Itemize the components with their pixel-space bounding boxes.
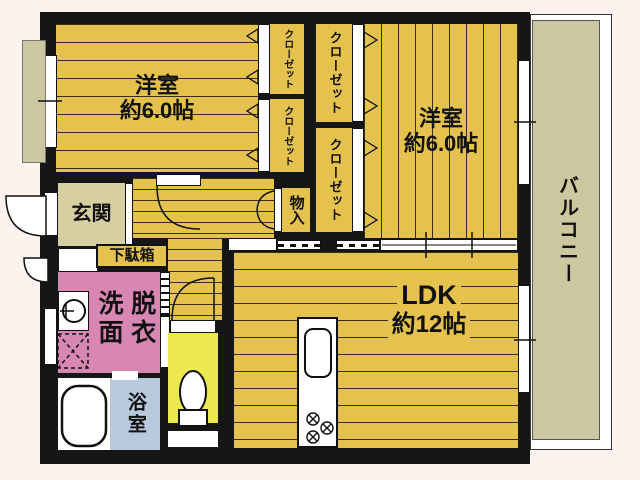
bathtub-icon xyxy=(62,386,106,446)
toilet-icon xyxy=(179,371,207,426)
plan-symbols-layer xyxy=(0,0,640,480)
washbasin-icon xyxy=(60,300,85,322)
floor-plan-canvas: バルコニー 洋室 約6.0帖 クローゼット クローゼット クローゼット クローゼ… xyxy=(0,0,640,480)
toilet-door-arc xyxy=(172,278,214,320)
closet2-fold-marks xyxy=(364,32,377,228)
washing-machine-icon xyxy=(58,334,88,368)
closet1-fold-marks xyxy=(247,29,258,162)
stove-icon xyxy=(307,413,333,443)
storage-door-arc-bottom xyxy=(257,210,274,229)
storage-door-arc-top xyxy=(257,191,274,210)
bedroom1-door-arc xyxy=(157,186,200,229)
entrance-door-swing xyxy=(6,196,46,236)
kitchen-sink-icon xyxy=(305,329,331,377)
utility-door-swing xyxy=(24,258,48,282)
